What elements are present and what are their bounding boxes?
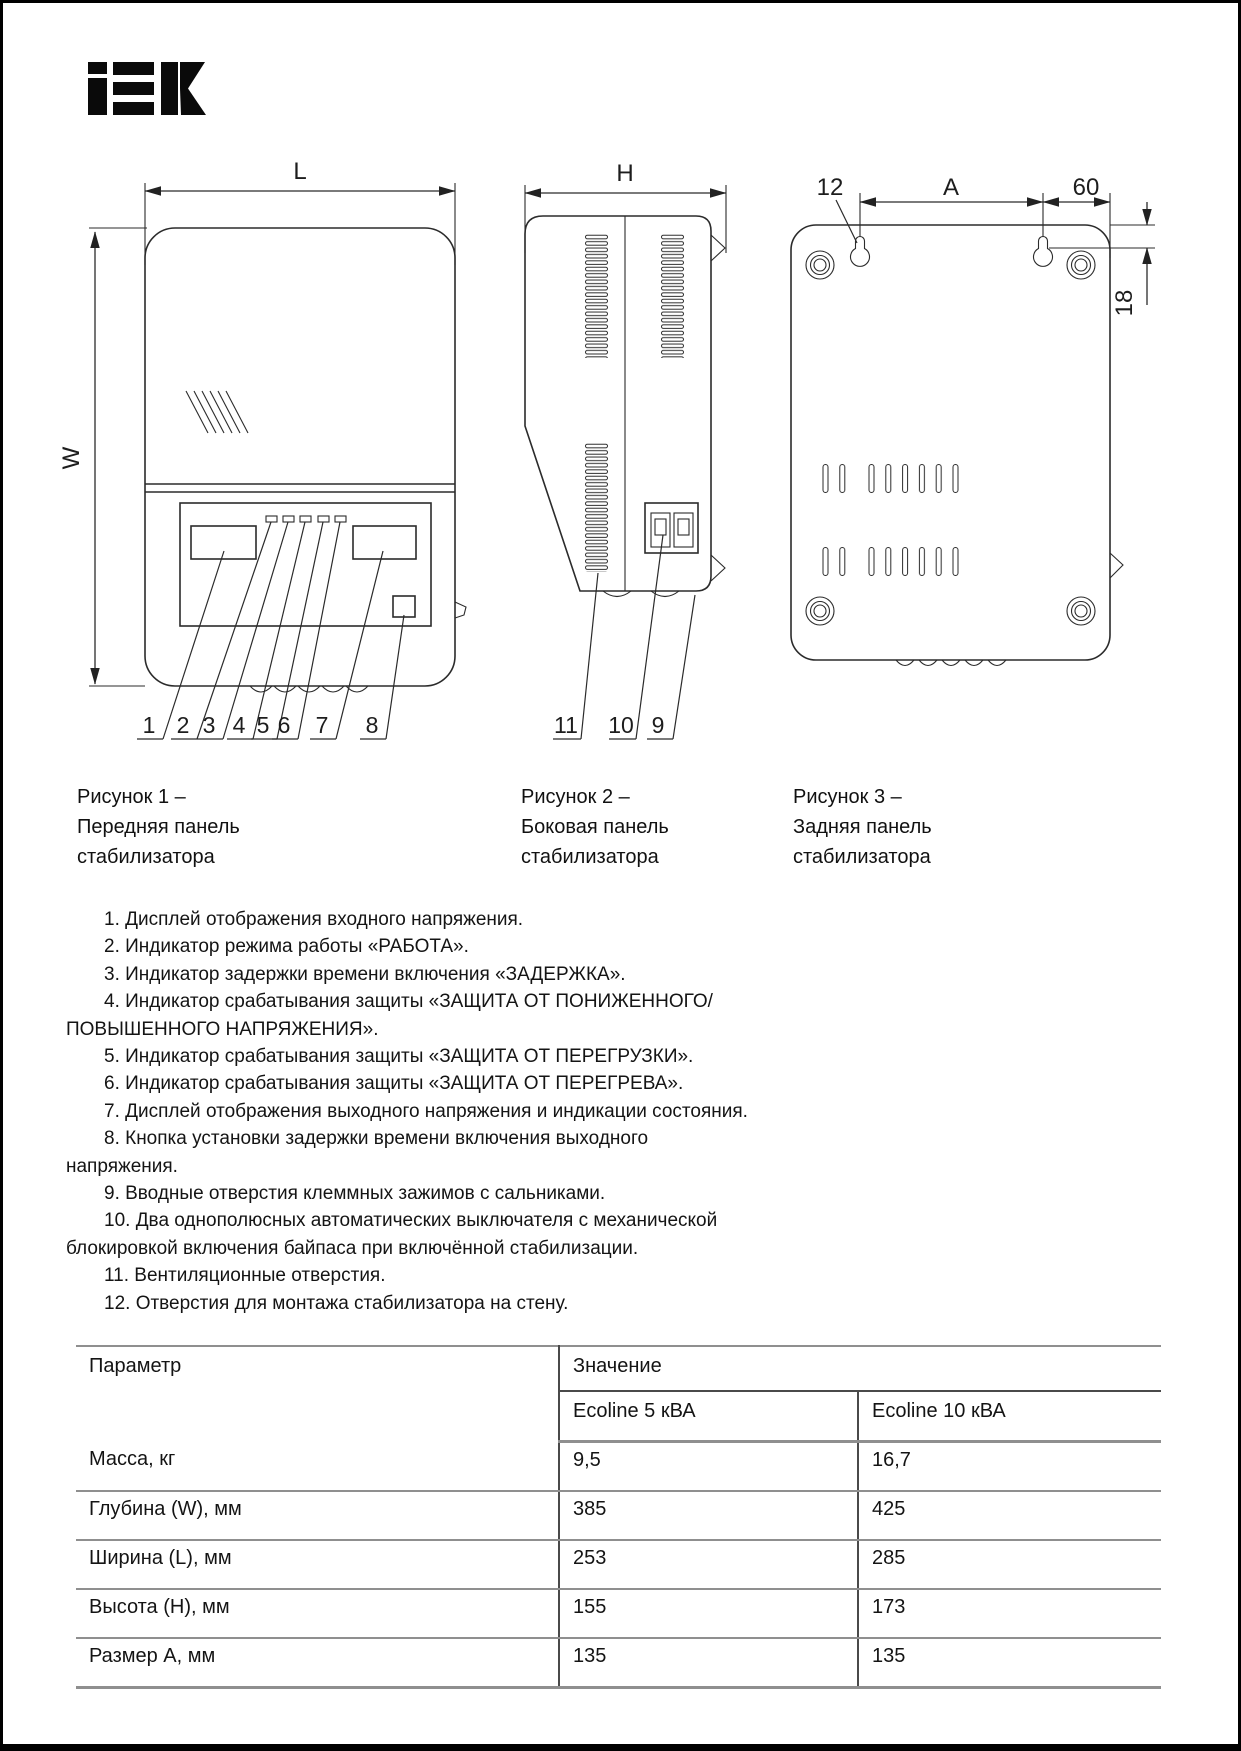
param-cell: Ширина (L), мм <box>76 1540 559 1589</box>
legend-item-1: 1. Дисплей отображения входного напряжен… <box>66 906 1056 933</box>
figure2-side-panel: H <box>525 160 726 739</box>
param-cell: Высота (H), мм <box>76 1589 559 1638</box>
fig3-dim-60-label: 60 <box>1073 174 1100 201</box>
figure2-caption: Рисунок 2 – Боковая панель стабилизатора <box>521 782 669 872</box>
figure3-caption: Рисунок 3 – Задняя панель стабилизатора <box>793 782 932 872</box>
fig2-callout-9: 9 <box>652 712 665 738</box>
figure3-caption-line1: Рисунок 3 – <box>793 782 932 812</box>
fig1-callout-1: 1 <box>143 712 156 738</box>
fig1-dim-w-label: W <box>58 446 85 469</box>
figure1-caption-line3: стабилизатора <box>77 842 240 872</box>
value-cell: 173 <box>858 1589 1161 1638</box>
legend-item-5: 5. Индикатор срабатывания защиты «ЗАЩИТА… <box>66 1043 1056 1070</box>
table-row: Размер А, мм 135 135 <box>76 1638 1161 1688</box>
value-cell: 135 <box>858 1638 1161 1688</box>
fig3-dim-18-label: 18 <box>1111 290 1138 317</box>
legend-item-7: 7. Дисплей отображения выходного напряже… <box>66 1098 1056 1125</box>
figure2-caption-line3: стабилизатора <box>521 842 669 872</box>
fig2-leader-lines <box>553 535 695 739</box>
legend-item-12: 12. Отверстия для монтажа стабилизатора … <box>66 1290 1056 1317</box>
figure1-front-panel: L W <box>58 158 466 739</box>
fig1-callout-7: 7 <box>316 712 329 738</box>
fig1-callout-2: 2 <box>177 712 190 738</box>
param-cell: Размер А, мм <box>76 1638 559 1688</box>
value-cell: 253 <box>559 1540 858 1589</box>
document-page: L W <box>0 0 1241 1751</box>
table-row: Ширина (L), мм 253 285 <box>76 1540 1161 1589</box>
table-header-param: Параметр <box>76 1346 559 1442</box>
legend-item-8-cont: напряжения. <box>66 1153 1056 1180</box>
legend-item-2: 2. Индикатор режима работы «РАБОТА». <box>66 933 1056 960</box>
param-cell: Глубина (W), мм <box>76 1491 559 1540</box>
value-cell: 155 <box>559 1589 858 1638</box>
fig1-callout-numbers: 1 2 3 4 5 6 7 8 <box>143 712 379 738</box>
fig3-dim-a-label: A <box>943 174 959 201</box>
fig1-delay-button <box>393 596 415 617</box>
value-cell: 385 <box>559 1491 858 1540</box>
technical-drawings: L W <box>3 3 1241 778</box>
value-cell: 285 <box>858 1540 1161 1589</box>
figure2-caption-line1: Рисунок 2 – <box>521 782 669 812</box>
fig1-dim-l-label: L <box>293 158 306 185</box>
legend-list: 1. Дисплей отображения входного напряжен… <box>66 906 1056 1317</box>
figure2-caption-line2: Боковая панель <box>521 812 669 842</box>
legend-item-10-cont: блокировкой включения байпаса при включё… <box>66 1235 1056 1262</box>
parameters-table: Параметр Значение Ecoline 5 кВА Ecoline … <box>76 1345 1161 1689</box>
fig1-output-display <box>353 526 416 559</box>
legend-item-4: 4. Индикатор срабатывания защиты «ЗАЩИТА… <box>66 988 1056 1015</box>
fig3-dim-12-label: 12 <box>817 174 844 201</box>
legend-item-4-cont: ПОВЫШЕННОГО НАПРЯЖЕНИЯ». <box>66 1016 1056 1043</box>
fig1-hatch-logo <box>186 391 248 433</box>
fig2-callout-11: 11 <box>554 712 578 738</box>
fig1-indicator-leds <box>266 516 346 522</box>
fig1-callout-4: 4 <box>233 712 246 738</box>
figure3-caption-line2: Задняя панель <box>793 812 932 842</box>
figure1-caption-line1: Рисунок 1 – <box>77 782 240 812</box>
legend-item-10: 10. Два однополюсных автоматических выкл… <box>66 1207 1056 1234</box>
fig2-callout-numbers: 11 10 9 <box>554 712 664 738</box>
figure1-caption: Рисунок 1 – Передняя панель стабилизатор… <box>77 782 240 872</box>
table-row: Высота (H), мм 155 173 <box>76 1589 1161 1638</box>
fig2-callout-10: 10 <box>608 712 634 738</box>
fig2-breaker-box <box>645 503 698 553</box>
fig1-callout-6: 6 <box>278 712 291 738</box>
value-cell: 135 <box>559 1638 858 1688</box>
legend-item-8: 8. Кнопка установки задержки времени вкл… <box>66 1125 1056 1152</box>
table-row: Глубина (W), мм 385 425 <box>76 1491 1161 1540</box>
figure3-caption-line3: стабилизатора <box>793 842 932 872</box>
table-col-ecoline10: Ecoline 10 кВА <box>858 1391 1161 1442</box>
fig2-dim-h-label: H <box>616 160 633 187</box>
legend-item-11: 11. Вентиляционные отверстия. <box>66 1262 1056 1289</box>
fig1-callout-5: 5 <box>257 712 270 738</box>
value-cell: 16,7 <box>858 1442 1161 1492</box>
fig1-leader-lines <box>137 522 404 739</box>
legend-item-6: 6. Индикатор срабатывания защиты «ЗАЩИТА… <box>66 1070 1056 1097</box>
fig3-keyhole-right <box>1034 237 1053 267</box>
value-cell: 425 <box>858 1491 1161 1540</box>
param-cell: Масса, кг <box>76 1442 559 1492</box>
value-cell: 9,5 <box>559 1442 858 1492</box>
legend-item-9: 9. Вводные отверстия клеммных зажимов с … <box>66 1180 1056 1207</box>
fig1-callout-3: 3 <box>203 712 216 738</box>
fig1-callout-8: 8 <box>366 712 379 738</box>
table-row: Масса, кг 9,5 16,7 <box>76 1442 1161 1492</box>
fig3-keyhole-left <box>850 237 869 267</box>
figure3-rear-panel: 12 A 60 18 <box>791 174 1155 666</box>
table-col-ecoline5: Ecoline 5 кВА <box>559 1391 858 1442</box>
figure1-caption-line2: Передняя панель <box>77 812 240 842</box>
legend-item-3: 3. Индикатор задержки времени включения … <box>66 961 1056 988</box>
table-header-value: Значение <box>559 1346 1161 1391</box>
